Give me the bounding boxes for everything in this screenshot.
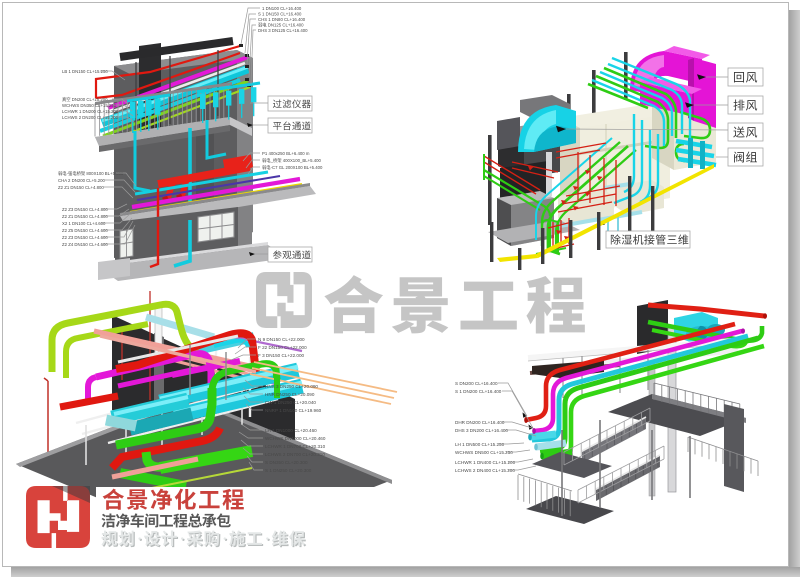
svg-text:S 1 DN150 CL+16.400: S 1 DN150 CL+16.400 — [258, 12, 302, 17]
svg-text:LCHWR 1 DN700 CL+20.310: LCHWR 1 DN700 CL+20.310 — [265, 444, 326, 449]
svg-text:F 22 DN150 CL+22.000: F 22 DN150 CL+22.000 — [258, 345, 307, 350]
svg-text:CHS 1 DN80 CL+16.400: CHS 1 DN80 CL+16.400 — [258, 17, 306, 22]
svg-text:LCHWS 2 DN200 CL+15.200: LCHWS 2 DN200 CL+15.200 — [62, 115, 119, 120]
svg-text:CW 1 DN250 CL+20.040: CW 1 DN250 CL+20.040 — [265, 400, 316, 405]
svg-text:DHS 3 DN200 CL+16.400: DHS 3 DN200 CL+16.400 — [455, 428, 508, 433]
svg-text:NNRP 1 DN100 CL+19.960: NNRP 1 DN100 CL+19.960 — [265, 408, 322, 413]
svg-text:Z2 Z5 DN150 CL+4.600: Z2 Z5 DN150 CL+4.600 — [62, 228, 108, 233]
svg-text:CHA 2 DN200 CL+5.200: CHA 2 DN200 CL+5.200 — [58, 178, 106, 183]
svg-text:WCHWS DN500 CL+15.250: WCHWS DN500 CL+15.250 — [455, 450, 513, 455]
svg-text:WCHWS DN350 CL+15.250: WCHWS DN350 CL+15.250 — [62, 103, 117, 108]
svg-text:DHR DN200 CL+16.400: DHR DN200 CL+16.400 — [455, 420, 505, 425]
svg-text:LH 1 DN1000 CL+20.460: LH 1 DN1000 CL+20.460 — [265, 428, 317, 433]
svg-text:弱电-强电桥架 800X100 BL+5.650: 弱电-强电桥架 800X100 BL+5.650 — [58, 170, 124, 177]
svg-text:WCHWS DN1000 CL+20.460: WCHWS DN1000 CL+20.460 — [265, 436, 326, 441]
svg-text:S DN200 CL+16.400: S DN200 CL+16.400 — [455, 381, 498, 386]
svg-text:真空 DN200 CL+15.200: 真空 DN200 CL+15.200 — [62, 96, 108, 103]
svg-text:F 3 DN150 CL+22.000: F 3 DN150 CL+22.000 — [258, 353, 305, 358]
svg-text:弱电-C7 GL 200X100 BL+5.400: 弱电-C7 GL 200X100 BL+5.400 — [262, 164, 323, 171]
svg-text:S 1 DN250 CL+20.300: S 1 DN250 CL+20.300 — [265, 468, 312, 473]
svg-text:LB 1 DN150 CL+15.250: LB 1 DN150 CL+15.250 — [62, 69, 108, 74]
svg-text:LH 1 DN500 CL+15.250: LH 1 DN500 CL+15.250 — [455, 442, 505, 447]
svg-text:DHS 3 DN125 CL+16.400: DHS 3 DN125 CL+16.400 — [258, 28, 308, 33]
svg-text:X2 1 DN100 CL+4.600: X2 1 DN100 CL+4.600 — [62, 221, 106, 226]
svg-text:N 9 DN150 CL+22.000: N 9 DN150 CL+22.000 — [258, 337, 305, 342]
svg-text:Z2 Z4 DN150 CL+4.600: Z2 Z4 DN150 CL+4.600 — [62, 242, 108, 247]
svg-text:S DN350 CL+20.300: S DN350 CL+20.300 — [265, 460, 308, 465]
svg-text:HNR DN250 CL+20.090: HNR DN250 CL+20.090 — [265, 392, 315, 397]
svg-text:弱电_桥架 400X100_BL+5.400: 弱电_桥架 400X100_BL+5.400 — [262, 157, 321, 164]
svg-text:1 DN100 CL+16.400: 1 DN100 CL+16.400 — [262, 6, 302, 11]
svg-text:Z2 Z1 DN150 CL+4.800: Z2 Z1 DN150 CL+4.800 — [62, 214, 108, 219]
svg-text:LCHWR 1 DN200 CL+15.200: LCHWR 1 DN200 CL+15.200 — [62, 109, 119, 114]
svg-text:Z2 Z1 DN150 CL+4.800: Z2 Z1 DN150 CL+4.800 — [58, 185, 104, 190]
svg-text:S 1 DN200 CL+16.400: S 1 DN200 CL+16.400 — [455, 389, 502, 394]
svg-text:Z2 Z3 DN150 CL+4.600: Z2 Z3 DN150 CL+4.600 — [62, 235, 108, 240]
svg-text:LCHWS 2 DN700 CL+20.310: LCHWS 2 DN700 CL+20.310 — [265, 452, 325, 457]
svg-text:LCHWS 2 DN400 CL+15.200: LCHWS 2 DN400 CL+15.200 — [455, 468, 515, 473]
svg-text:LCHWR 1 DN400 CL+15.200: LCHWR 1 DN400 CL+15.200 — [455, 460, 516, 465]
svg-text:HNS 3 DN250 CL+20.090: HNS 3 DN250 CL+20.090 — [265, 384, 318, 389]
svg-text:P1 400x250 BL+6.400 m: P1 400x250 BL+6.400 m — [262, 151, 310, 156]
svg-text:Z2 Z3 DN150 CL+4.800: Z2 Z3 DN150 CL+4.800 — [62, 207, 108, 212]
